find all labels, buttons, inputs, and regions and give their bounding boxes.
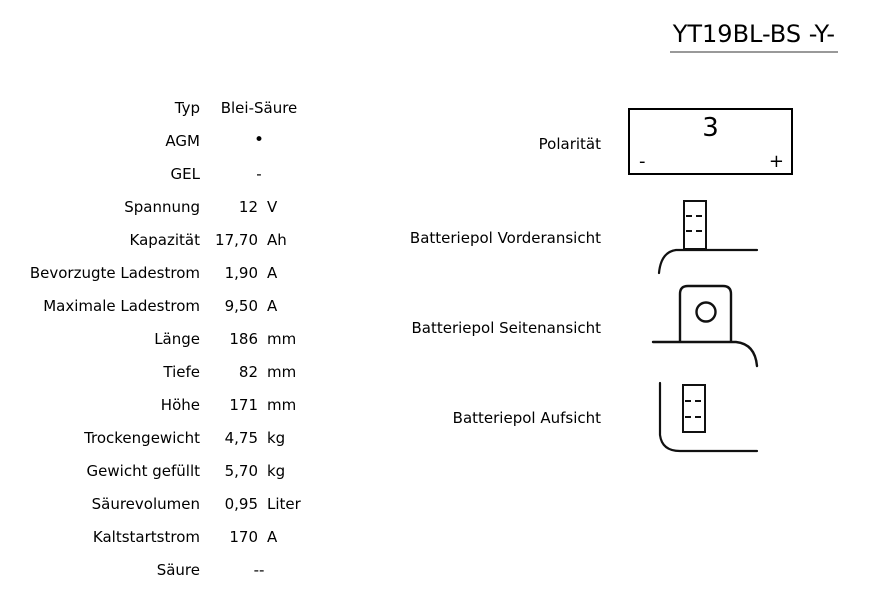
spec-label-maximale-ladestrom: Maximale Ladestrom [0, 297, 200, 315]
spec-row-maximale-ladestrom: Maximale Ladestrom 9,50 A [0, 289, 330, 322]
spec-row-spannung: Spannung 12 V [0, 190, 330, 223]
spec-unit-kapazitaet: Ah [267, 231, 287, 249]
spec-label-laenge: Länge [0, 330, 200, 348]
terminal-top-view-icon [640, 376, 780, 461]
terminal-side-view-label: Batteriepol Seitenansicht [411, 319, 601, 337]
spec-label-gel: GEL [0, 165, 200, 183]
spec-label-hoehe: Höhe [0, 396, 200, 414]
spec-row-saeurevolumen: Säurevolumen 0,95 Liter [0, 487, 330, 520]
spec-value-kapazitaet: 17,70 [200, 231, 258, 249]
spec-unit-trockengewicht: kg [267, 429, 285, 447]
polarity-value: 3 [630, 113, 791, 143]
spec-label-agm: AGM [0, 132, 200, 150]
spec-row-hoehe: Höhe 171 mm [0, 388, 330, 421]
spec-value-maximale-ladestrom: 9,50 [200, 297, 258, 315]
polarity-plus-sign: + [769, 151, 784, 173]
spec-value-kaltstartstrom: 170 [200, 528, 258, 546]
spec-value-typ: Blei-Säure [200, 99, 318, 117]
spec-unit-saeurevolumen: Liter [267, 495, 301, 513]
polarity-box: 3 - + [628, 108, 793, 175]
spec-value-hoehe: 171 [200, 396, 258, 414]
terminal-front-view-label: Batteriepol Vorderansicht [410, 229, 601, 247]
spec-label-typ: Typ [0, 99, 200, 117]
spec-row-kapazitaet: Kapazität 17,70 Ah [0, 223, 330, 256]
spec-label-tiefe: Tiefe [0, 363, 200, 381]
spec-label-bevorzugte-ladestrom: Bevorzugte Ladestrom [0, 264, 200, 282]
spec-label-kaltstartstrom: Kaltstartstrom [0, 528, 200, 546]
terminal-top-view-label: Batteriepol Aufsicht [453, 409, 601, 427]
spec-value-bevorzugte-ladestrom: 1,90 [200, 264, 258, 282]
spec-label-kapazitaet: Kapazität [0, 231, 200, 249]
spec-value-agm: • [200, 133, 318, 148]
spec-value-saeurevolumen: 0,95 [200, 495, 258, 513]
spec-table: Typ Blei-Säure AGM • GEL - Spannung 12 V… [0, 91, 330, 586]
spec-value-spannung: 12 [200, 198, 258, 216]
polarity-minus-sign: - [639, 151, 646, 173]
spec-label-gewicht-gefuellt: Gewicht gefüllt [0, 462, 200, 480]
page-title: YT19BL-BS -Y- [670, 20, 838, 53]
spec-row-trockengewicht: Trockengewicht 4,75 kg [0, 421, 330, 454]
spec-value-laenge: 186 [200, 330, 258, 348]
terminal-front-view-icon [640, 196, 780, 281]
spec-unit-laenge: mm [267, 330, 296, 348]
spec-value-trockengewicht: 4,75 [200, 429, 258, 447]
spec-unit-gewicht-gefuellt: kg [267, 462, 285, 480]
spec-row-laenge: Länge 186 mm [0, 322, 330, 355]
spec-row-kaltstartstrom: Kaltstartstrom 170 A [0, 520, 330, 553]
spec-row-bevorzugte-ladestrom: Bevorzugte Ladestrom 1,90 A [0, 256, 330, 289]
spec-unit-bevorzugte-ladestrom: A [267, 264, 277, 282]
spec-row-saeure: Säure -- [0, 553, 330, 586]
polarity-label: Polarität [539, 135, 601, 153]
spec-unit-tiefe: mm [267, 363, 296, 381]
spec-label-saeurevolumen: Säurevolumen [0, 495, 200, 513]
spec-value-gel: - [200, 165, 318, 183]
terminal-side-view-icon [640, 281, 780, 376]
spec-label-saeure: Säure [0, 561, 200, 579]
spec-row-agm: AGM • [0, 124, 330, 157]
spec-row-tiefe: Tiefe 82 mm [0, 355, 330, 388]
spec-unit-kaltstartstrom: A [267, 528, 277, 546]
battery-spec-sheet: YT19BL-BS -Y- Typ Blei-Säure AGM • GEL -… [0, 0, 878, 600]
spec-unit-spannung: V [267, 198, 277, 216]
spec-unit-maximale-ladestrom: A [267, 297, 277, 315]
spec-unit-hoehe: mm [267, 396, 296, 414]
spec-value-saeure: -- [200, 561, 318, 579]
spec-row-gewicht-gefuellt: Gewicht gefüllt 5,70 kg [0, 454, 330, 487]
spec-row-gel: GEL - [0, 157, 330, 190]
spec-value-tiefe: 82 [200, 363, 258, 381]
spec-label-spannung: Spannung [0, 198, 200, 216]
spec-value-gewicht-gefuellt: 5,70 [200, 462, 258, 480]
spec-row-typ: Typ Blei-Säure [0, 91, 330, 124]
spec-label-trockengewicht: Trockengewicht [0, 429, 200, 447]
